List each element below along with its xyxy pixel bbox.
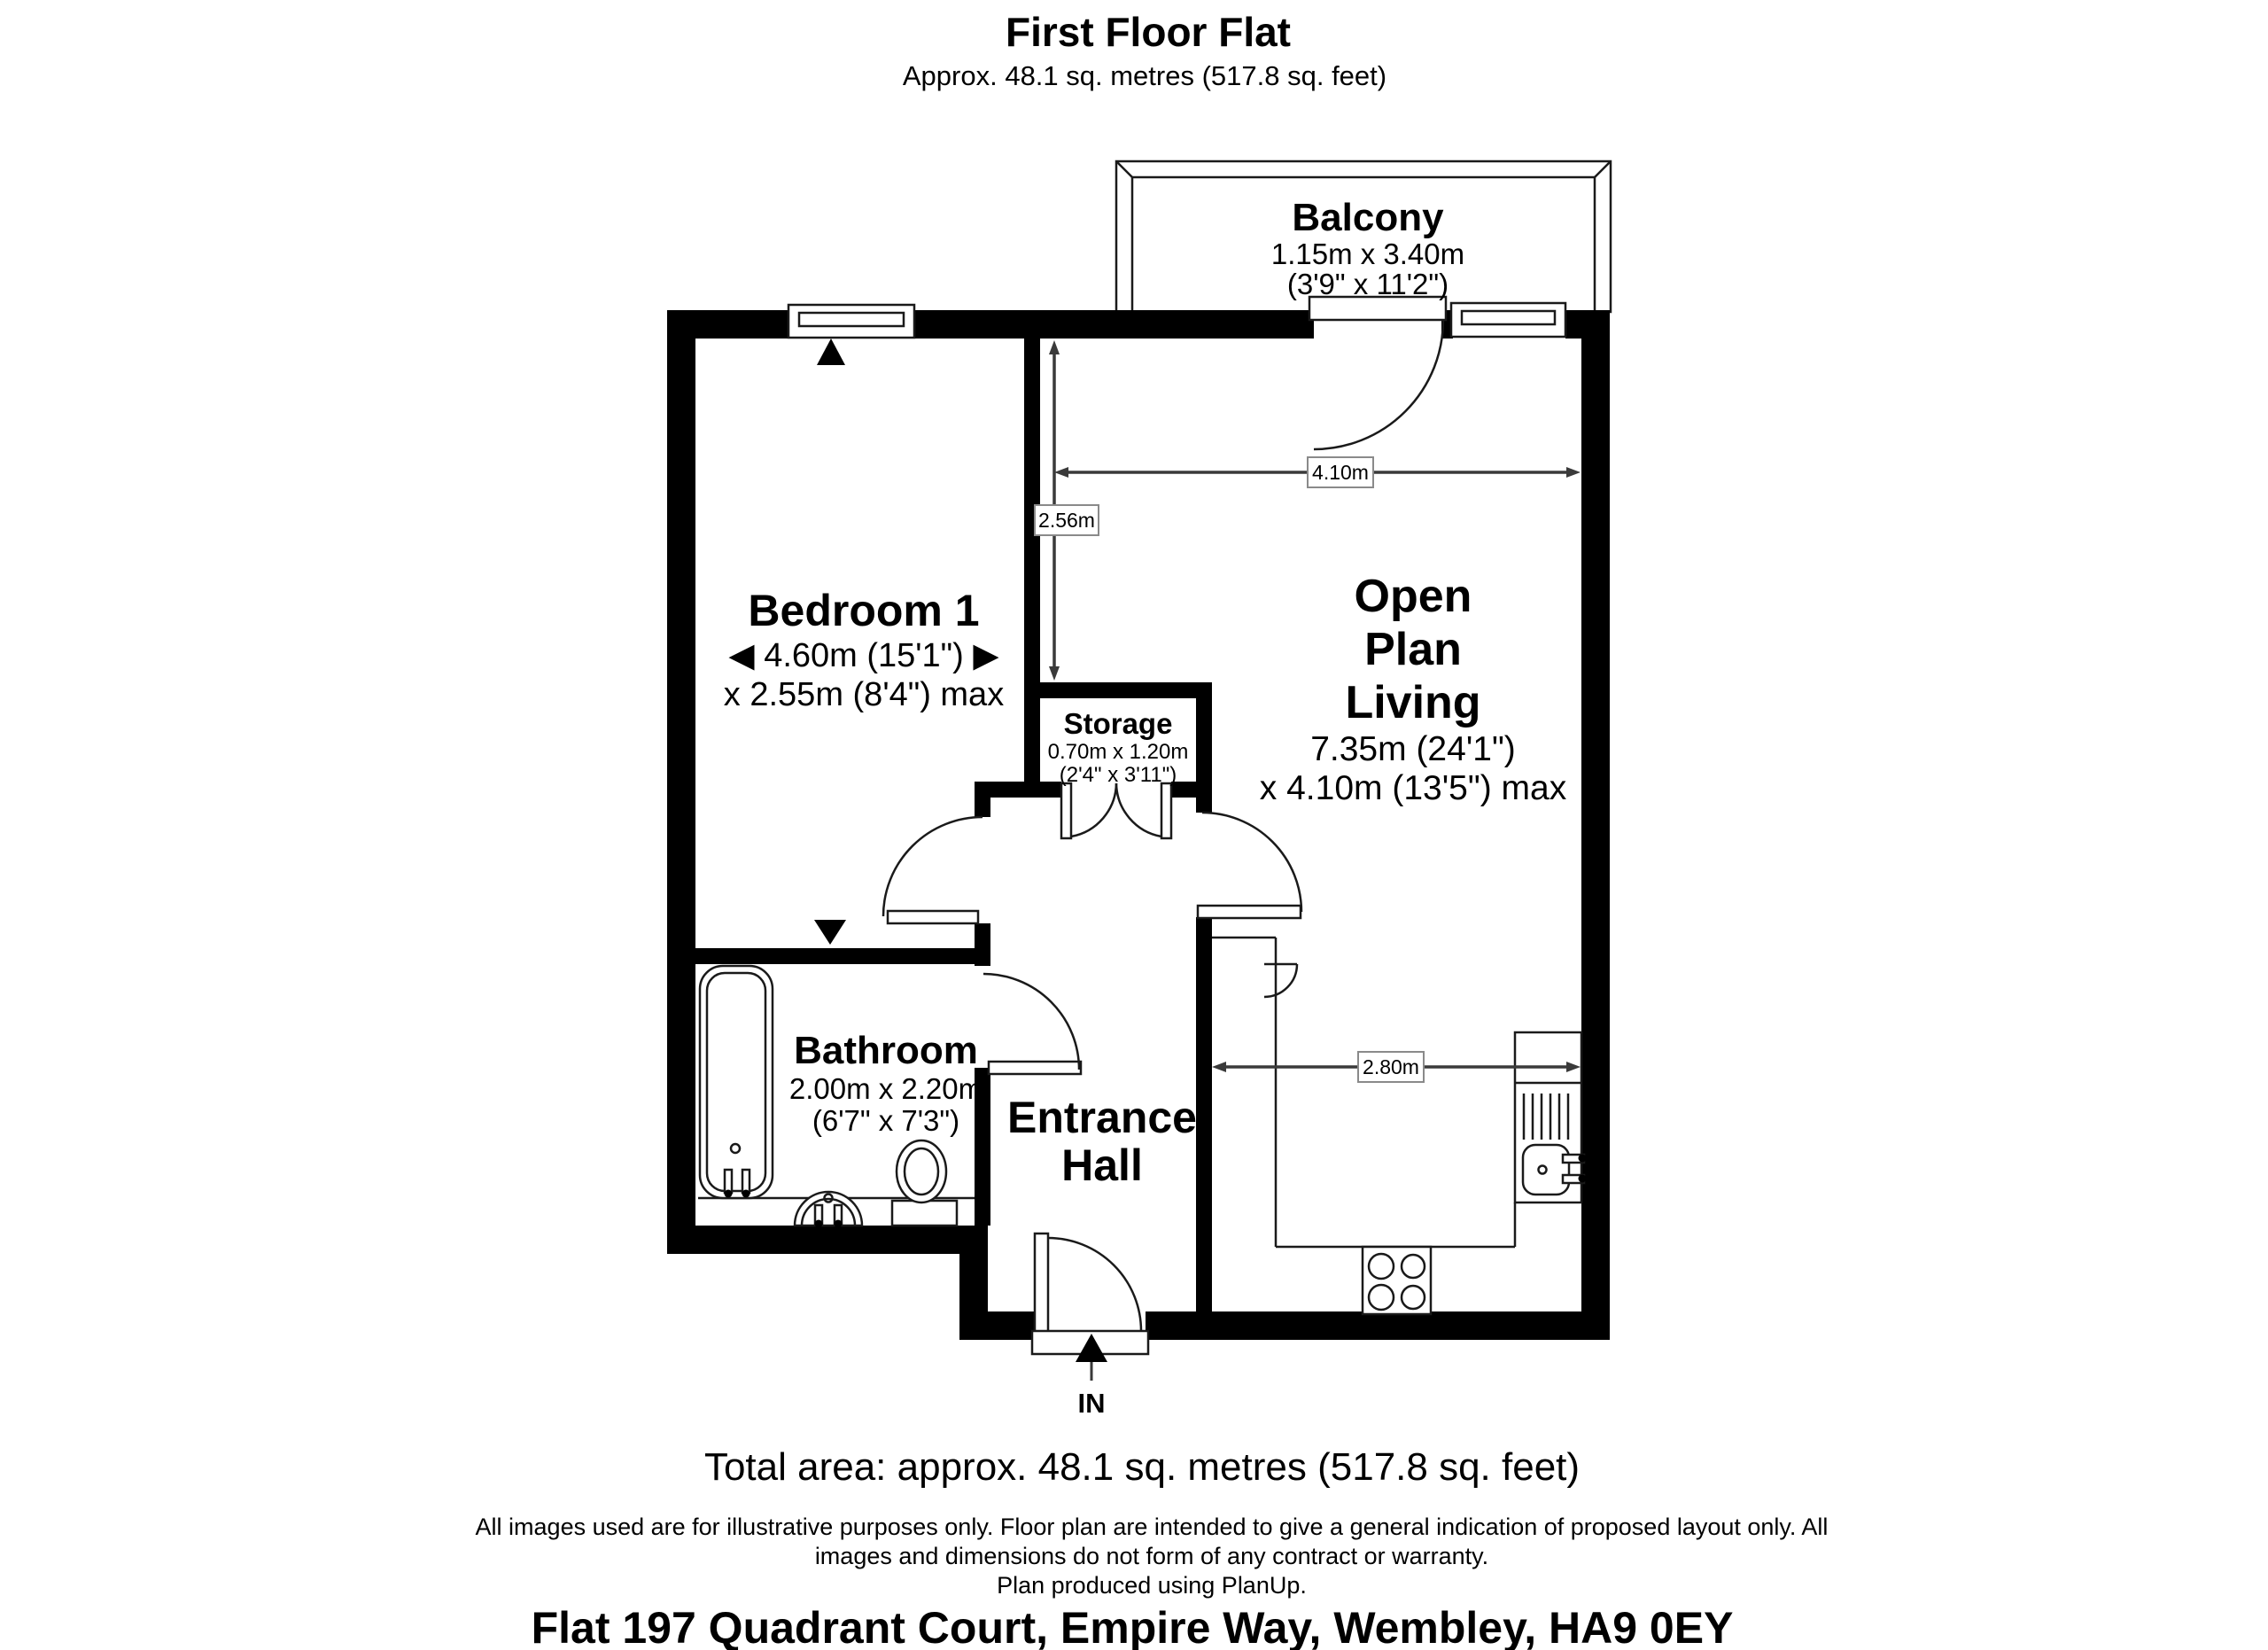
entrance-in-label: IN <box>1078 1388 1106 1419</box>
entrance-door <box>1032 1234 1148 1354</box>
total-area-text: Total area: approx. 48.1 sq. metres (517… <box>704 1445 1580 1489</box>
floorplan-page: First Floor Flat Approx. 48.1 sq. metres… <box>0 0 2268 1650</box>
entrance-hall-name1: Entrance <box>1007 1093 1197 1142</box>
balcony-name: Balcony <box>1292 196 1444 239</box>
bedroom-depth-arrow-top <box>817 339 845 365</box>
living-room-door <box>1198 813 1301 918</box>
bathroom-dim-imperial: (6'7" x 7'3") <box>812 1104 959 1137</box>
balcony-dim-imperial: (3'9" x 11'2") <box>1287 268 1449 300</box>
living-name1: Open <box>1355 571 1472 622</box>
bathroom-name: Bathroom <box>794 1029 978 1072</box>
address-text: Flat 197 Quadrant Court, Empire Way, Wem… <box>532 1603 1734 1650</box>
bedroom1-name: Bedroom 1 <box>748 586 979 635</box>
storage-label: Storage 0.70m x 1.20m (2'4" x 3'11") <box>1048 707 1189 787</box>
disclaimer-line2: images and dimensions do not form of any… <box>815 1543 1488 1569</box>
bedroom-door <box>883 817 983 923</box>
bathtub-icon <box>700 966 773 1198</box>
floorplan-canvas: First Floor Flat Approx. 48.1 sq. metres… <box>0 0 2268 1650</box>
living-dim2: x 4.10m (13'5") max <box>1260 769 1567 807</box>
balcony-dim-metric: 1.15m x 3.40m <box>1271 237 1464 270</box>
bathroom-dim-metric: 2.00m x 2.20m <box>789 1072 983 1105</box>
storage-double-doors <box>1061 783 1171 838</box>
storage-dim-metric: 0.70m x 1.20m <box>1048 740 1189 764</box>
entrance-hall-name2: Hall <box>1061 1140 1143 1190</box>
kitchen-cupboard-door <box>1264 964 1297 997</box>
open-plan-living-label: Open Plan Living 7.35m (24'1") x 4.10m (… <box>1260 571 1567 807</box>
disclaimer-line1: All images used are for illustrative pur… <box>476 1514 1829 1540</box>
balcony-label: Balcony 1.15m x 3.40m (3'9" x 11'2") <box>1271 196 1464 300</box>
kitchen-width-label: 2.80m <box>1363 1055 1419 1078</box>
living-name2: Plan <box>1364 624 1462 675</box>
dimension-living-width: 4.10m <box>1054 457 1581 487</box>
storage-name: Storage <box>1064 707 1173 740</box>
bathroom-label: Bathroom 2.00m x 2.20m (6'7" x 7'3") <box>789 1029 983 1137</box>
toilet-icon <box>892 1140 957 1226</box>
bedroom1-label: Bedroom 1 ◀ 4.60m (15'1") ▶ x 2.55m (8'4… <box>724 586 1004 713</box>
living-width-label: 4.10m <box>1312 461 1369 484</box>
living-name3: Living <box>1345 677 1480 728</box>
entrance-hall-label: Entrance Hall <box>1007 1093 1197 1190</box>
dimension-living-depth: 2.56m <box>1035 340 1099 681</box>
kitchen-sink-icon <box>1515 1032 1587 1202</box>
bedroom-depth-arrow-bottom <box>814 920 846 945</box>
page-title: First Floor Flat <box>1006 9 1291 55</box>
disclaimer-line3: Plan produced using PlanUp. <box>997 1572 1307 1599</box>
living-dim1: 7.35m (24'1") <box>1310 730 1516 768</box>
living-window-icon <box>1451 303 1565 337</box>
storage-dim-imperial: (2'4" x 3'11") <box>1060 763 1177 787</box>
bedroom1-dim1: ◀ 4.60m (15'1") ▶ <box>728 637 999 674</box>
kitchen-counter <box>1212 938 1515 1247</box>
hob-icon <box>1363 1247 1431 1314</box>
living-depth-label: 2.56m <box>1038 509 1095 532</box>
balcony-door <box>1309 297 1446 449</box>
bedroom-window-icon <box>788 305 914 338</box>
bathroom-door <box>983 974 1081 1074</box>
bedroom1-dim2: x 2.55m (8'4") max <box>724 676 1004 713</box>
page-subtitle: Approx. 48.1 sq. metres (517.8 sq. feet) <box>903 60 1386 91</box>
